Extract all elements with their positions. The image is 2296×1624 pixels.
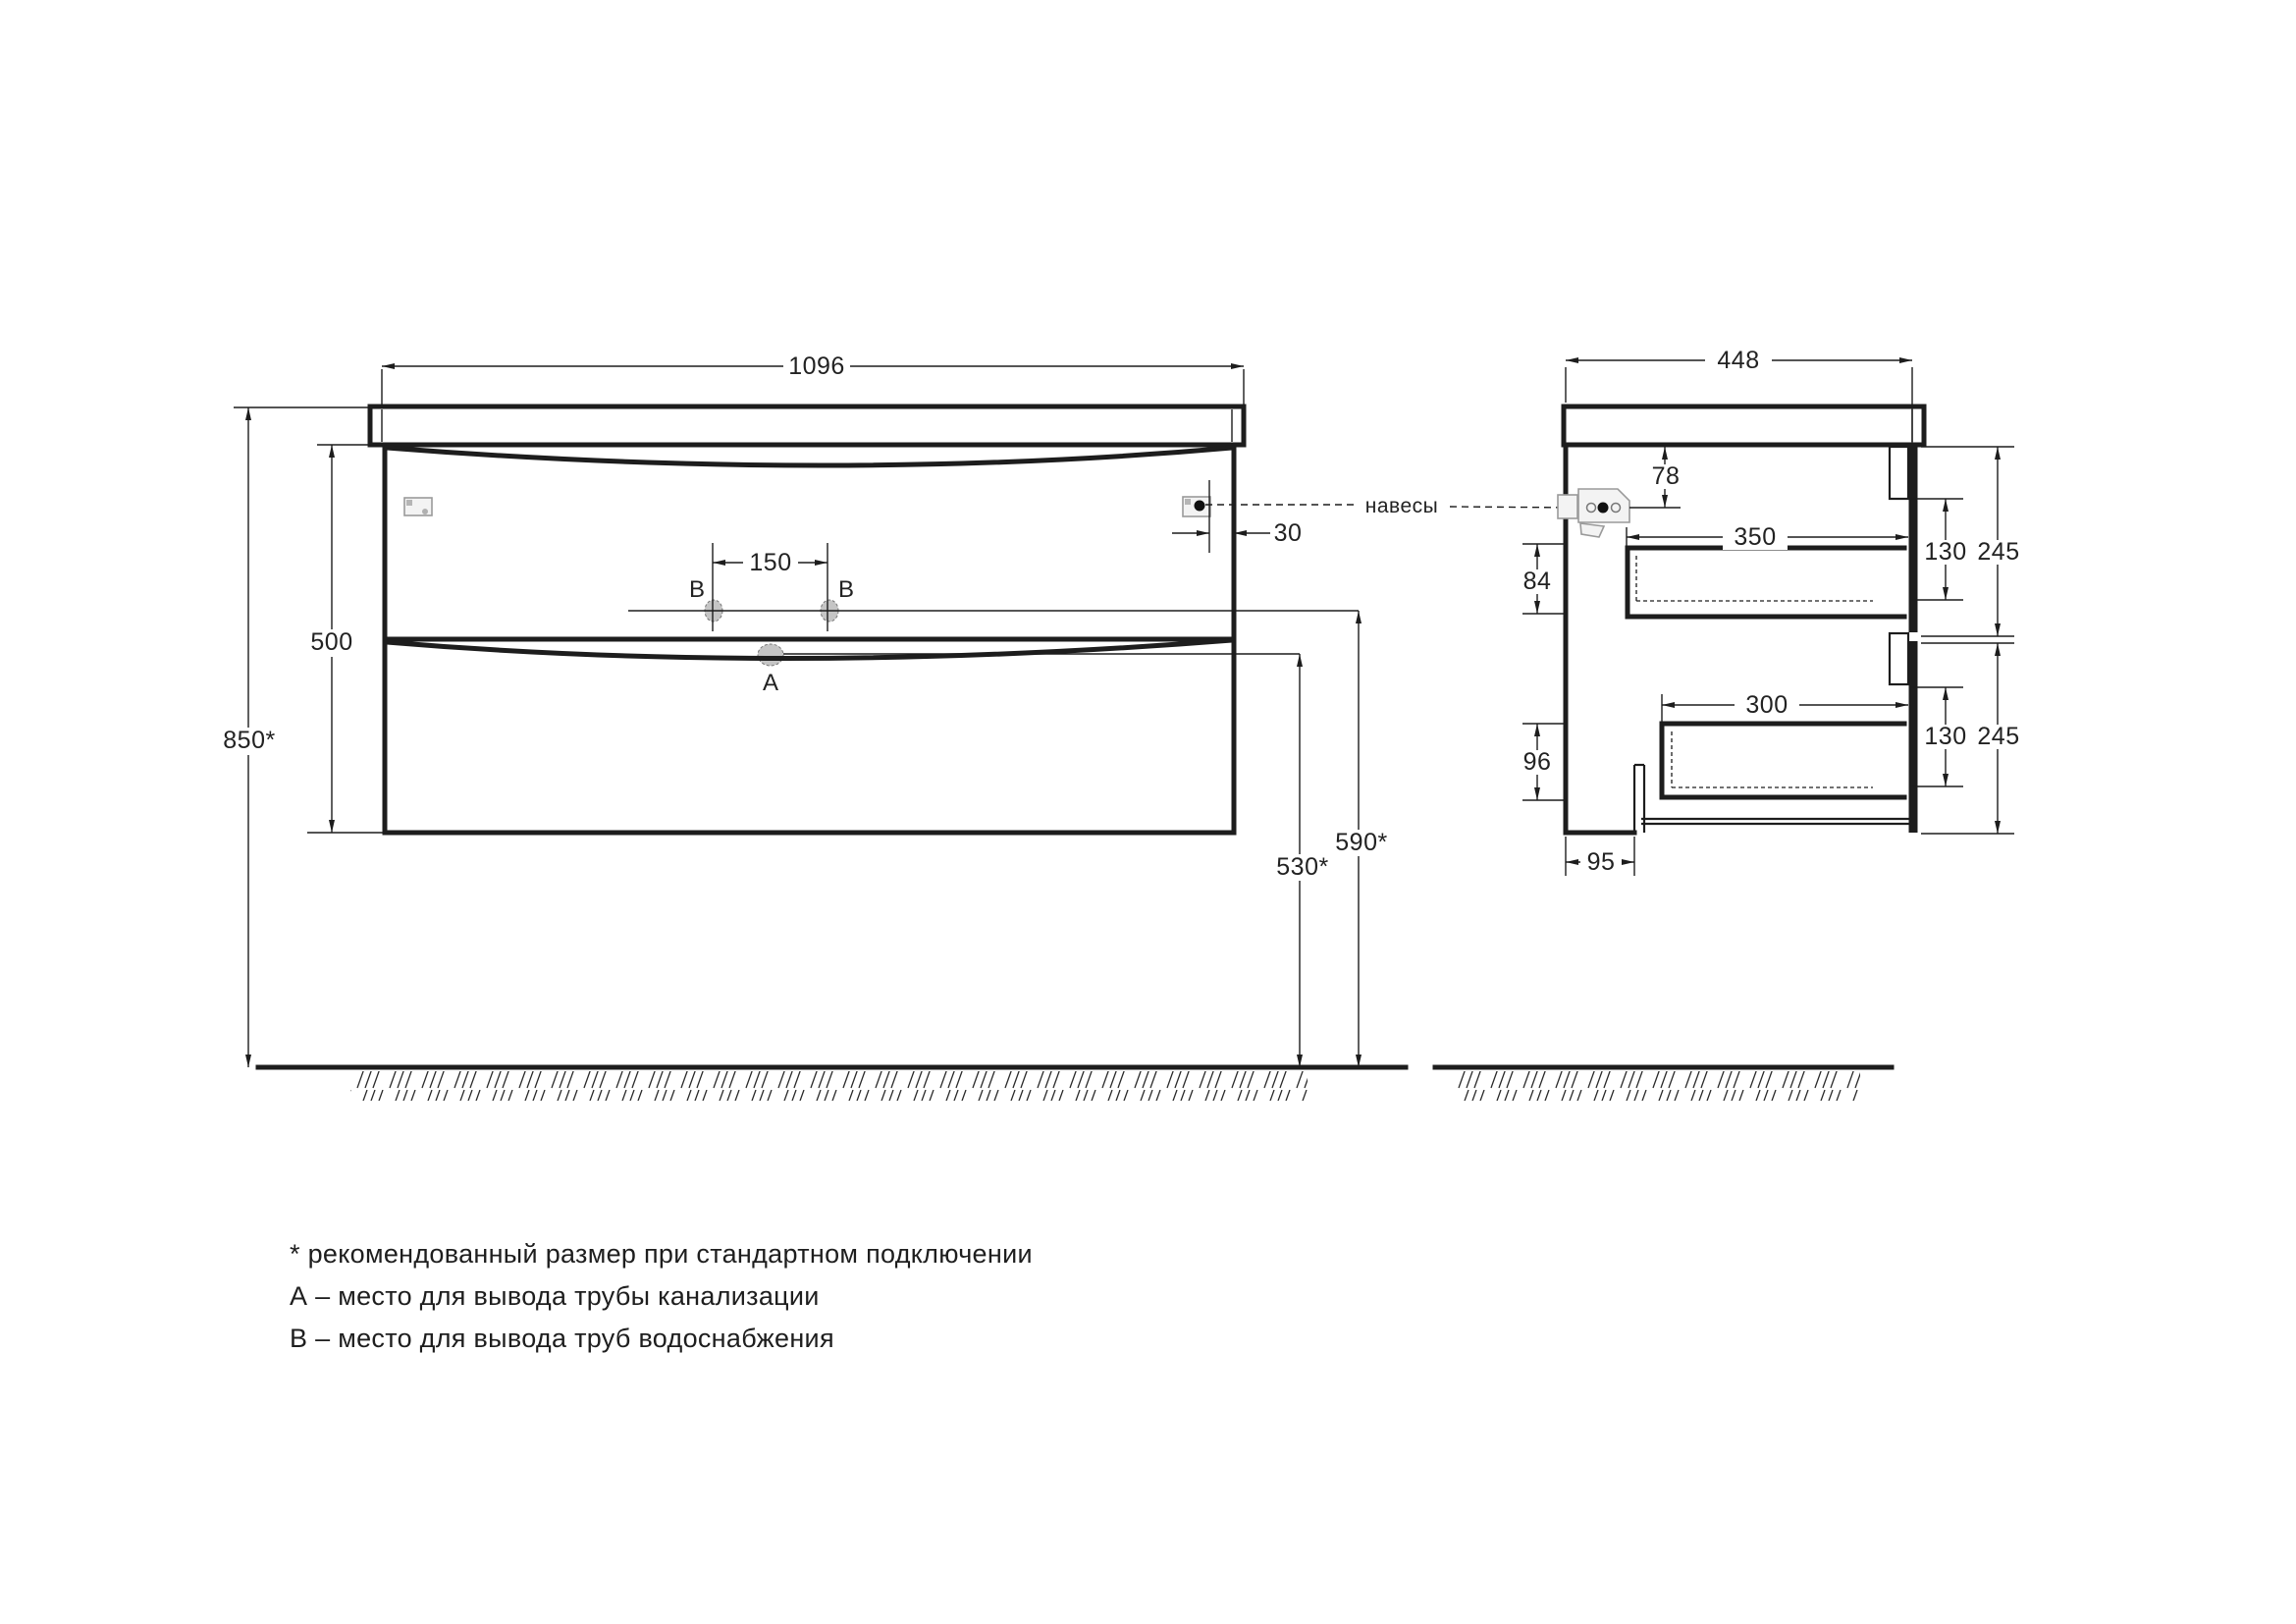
- drain-hole: [758, 644, 783, 666]
- hanger-slot-icon: [406, 500, 412, 506]
- side-view: [1558, 406, 1924, 833]
- dim-lower-front-height-label: 245: [1977, 723, 2019, 750]
- hanger-pin-icon: [1195, 501, 1205, 512]
- dim-lower-side-height-label: 96: [1523, 748, 1552, 776]
- bracket-tab: [1558, 495, 1577, 518]
- technical-drawing: 1096 850* 500 150 30 590* 530* B B A нав…: [0, 0, 2296, 1624]
- hanger-screw-icon: [422, 509, 428, 514]
- hangers-callout-label: навесы: [1365, 495, 1438, 517]
- dim-upper-drawer-depth-label: 350: [1734, 523, 1776, 551]
- dim-bracket-drop-label: 78: [1652, 462, 1681, 490]
- dim-total-height-label: 850*: [223, 727, 275, 754]
- front-view: [370, 406, 1244, 833]
- legend: * рекомендованный размер при стандартном…: [290, 1233, 1033, 1360]
- dim-depth-label: 448: [1717, 347, 1759, 374]
- dim-upper-side-height-label: 84: [1523, 568, 1552, 595]
- hanger-icon-left: [404, 498, 432, 515]
- mounting-bracket: [1558, 489, 1629, 537]
- hanger-slot-icon: [1185, 499, 1191, 505]
- front-countertop: [370, 406, 1244, 445]
- drawing-page: { "colors": { "line": "#1d1d1d", "hole_f…: [0, 0, 2296, 1624]
- dim-lower-box-height-label: 130: [1924, 723, 1966, 750]
- dim-width-label: 1096: [788, 352, 845, 380]
- bracket-hook: [1580, 523, 1604, 537]
- legend-note-b: В – место для вывода труб водоснабжения: [290, 1318, 1033, 1360]
- dim-bracket-offset-label: 30: [1274, 519, 1303, 547]
- ground-hatch-left: [350, 1071, 1308, 1101]
- dim-lower-drawer-depth-label: 300: [1745, 691, 1788, 719]
- ground: [258, 1067, 1892, 1101]
- side-countertop: [1564, 406, 1924, 445]
- dim-drain-height-label: 530*: [1276, 853, 1328, 881]
- supply-point-left-label: B: [689, 576, 705, 603]
- bracket-pin-icon: [1598, 503, 1609, 514]
- dim-cabinet-height-label: 500: [310, 628, 352, 656]
- dim-supply-height-label: 590*: [1335, 829, 1387, 856]
- dim-upper-box-height-label: 130: [1924, 538, 1966, 566]
- hanger-icon-right: [1183, 497, 1210, 516]
- legend-note-asterisk: * рекомендованный размер при стандартном…: [290, 1233, 1033, 1275]
- drain-point-label: A: [763, 670, 778, 696]
- dim-upper-front-height-label: 245: [1977, 538, 2019, 566]
- supply-point-right-label: B: [838, 576, 854, 603]
- ground-hatch-right: [1456, 1071, 1860, 1101]
- handle-profile-lower: [1890, 633, 1908, 684]
- dim-drain-cutout-label: 95: [1587, 848, 1616, 876]
- handle-profile-upper: [1890, 447, 1908, 499]
- dim-supply-spacing-label: 150: [749, 549, 791, 576]
- legend-note-a: А – место для вывода трубы канализации: [290, 1275, 1033, 1318]
